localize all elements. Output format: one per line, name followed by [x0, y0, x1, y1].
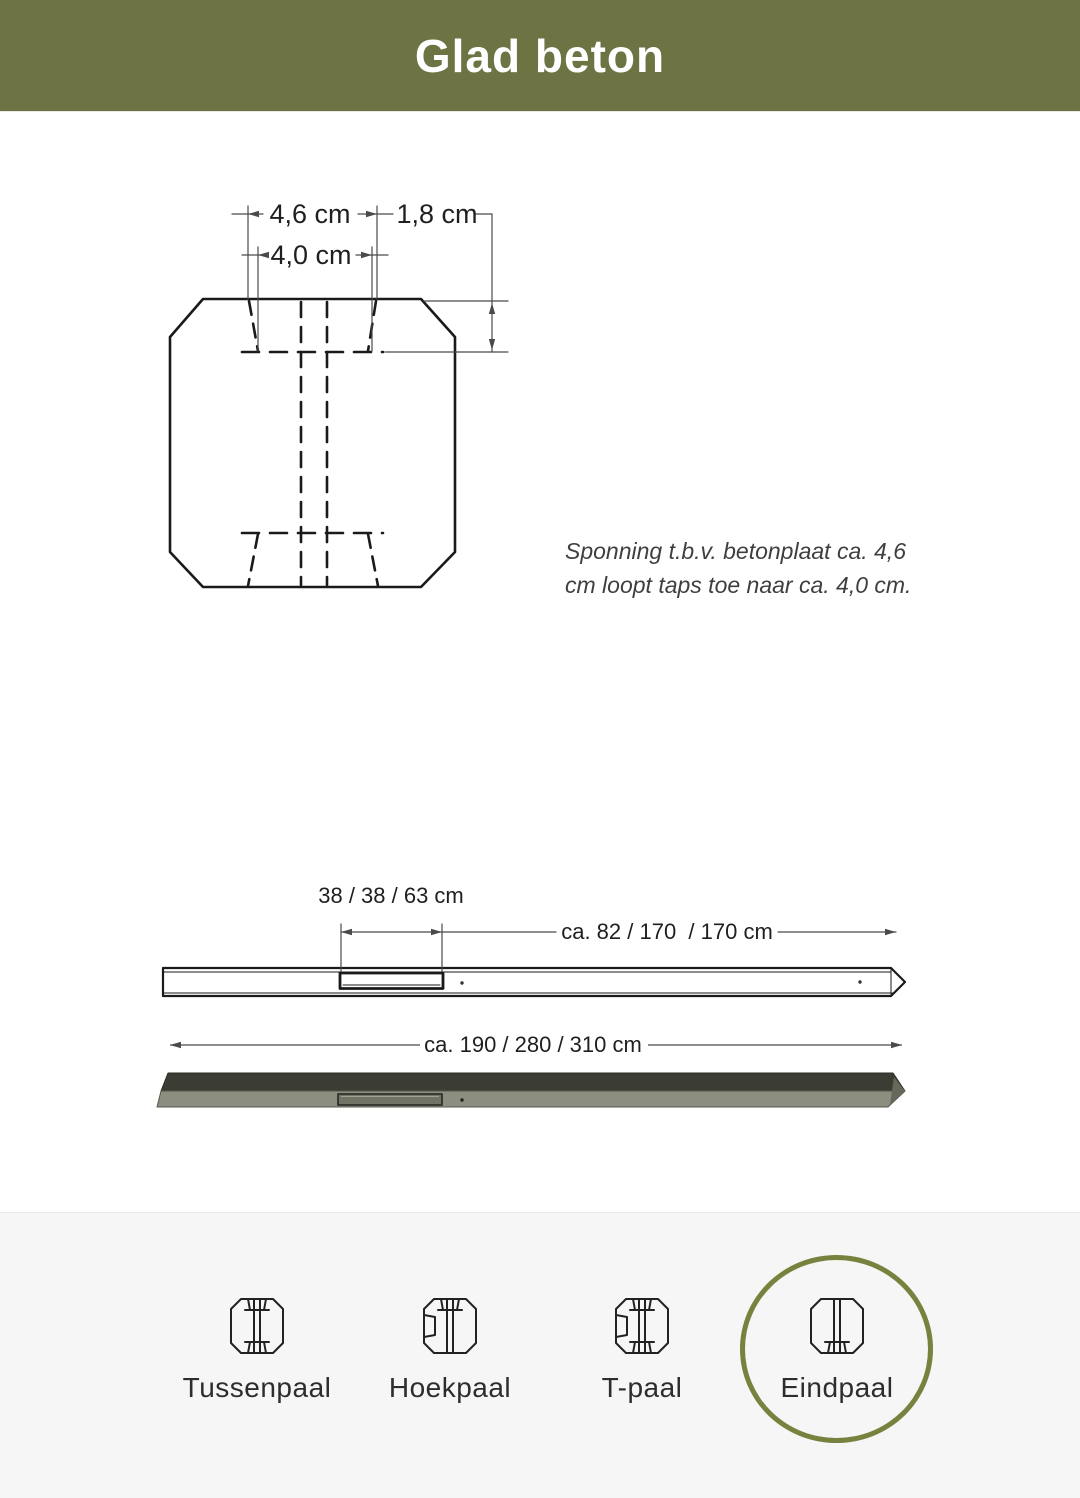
cross-section-diagram: 4,6 cm 4,0 cm 1,8 cm	[170, 199, 508, 587]
hoekpaal-icon	[422, 1297, 478, 1355]
outline-post-hole-right	[858, 980, 861, 983]
solid-post-hole	[460, 1098, 463, 1101]
post-type-t-paal: T-paal	[562, 1297, 722, 1404]
solid-post-recess	[338, 1094, 442, 1105]
post-type-tussenpaal: Tussenpaal	[177, 1297, 337, 1404]
note-line-1: Sponning t.b.v. betonplaat ca. 4,6	[565, 534, 945, 568]
outline-post-hole-left	[460, 981, 463, 984]
dim-upper-section-label: ca. 82 / 170 / 170 cm	[561, 919, 773, 944]
technical-drawing: 4,6 cm 4,0 cm 1,8 cm	[0, 0, 1080, 1212]
post-side-view-outline: 38 / 38 / 63 cm ca. 82 / 170 / 170 cm	[163, 883, 905, 996]
post-cross-section-outline	[170, 299, 455, 587]
dim-recess-label: 38 / 38 / 63 cm	[318, 883, 464, 908]
post-type-label-hoekpaal: Hoekpaal	[370, 1372, 530, 1404]
page: Glad beton	[0, 0, 1080, 1498]
post-type-eindpaal: Eindpaal	[757, 1297, 917, 1404]
note-line-2: cm loopt taps toe naar ca. 4,0 cm.	[565, 568, 945, 602]
post-side-view-solid: ca. 190 / 280 / 310 cm	[157, 1032, 905, 1107]
post-type-label-eindpaal: Eindpaal	[757, 1372, 917, 1404]
post-type-label-tussenpaal: Tussenpaal	[177, 1372, 337, 1404]
post-type-label-t-paal: T-paal	[562, 1372, 722, 1404]
dim-total-label: ca. 190 / 280 / 310 cm	[424, 1032, 642, 1057]
dim-depth-label: 1,8 cm	[396, 199, 477, 229]
tussenpaal-icon	[229, 1297, 285, 1355]
eindpaal-icon	[809, 1297, 865, 1355]
dim-bottom-width-label: 4,0 cm	[270, 240, 351, 270]
solid-post-front-face	[157, 1091, 905, 1107]
solid-post-top-face	[161, 1073, 905, 1091]
t-paal-icon	[614, 1297, 670, 1355]
outline-post-recess	[340, 973, 443, 989]
dim-top-width-label: 4,6 cm	[269, 199, 350, 229]
sponning-note: Sponning t.b.v. betonplaat ca. 4,6 cm lo…	[565, 534, 945, 602]
post-type-hoekpaal: Hoekpaal	[370, 1297, 530, 1404]
